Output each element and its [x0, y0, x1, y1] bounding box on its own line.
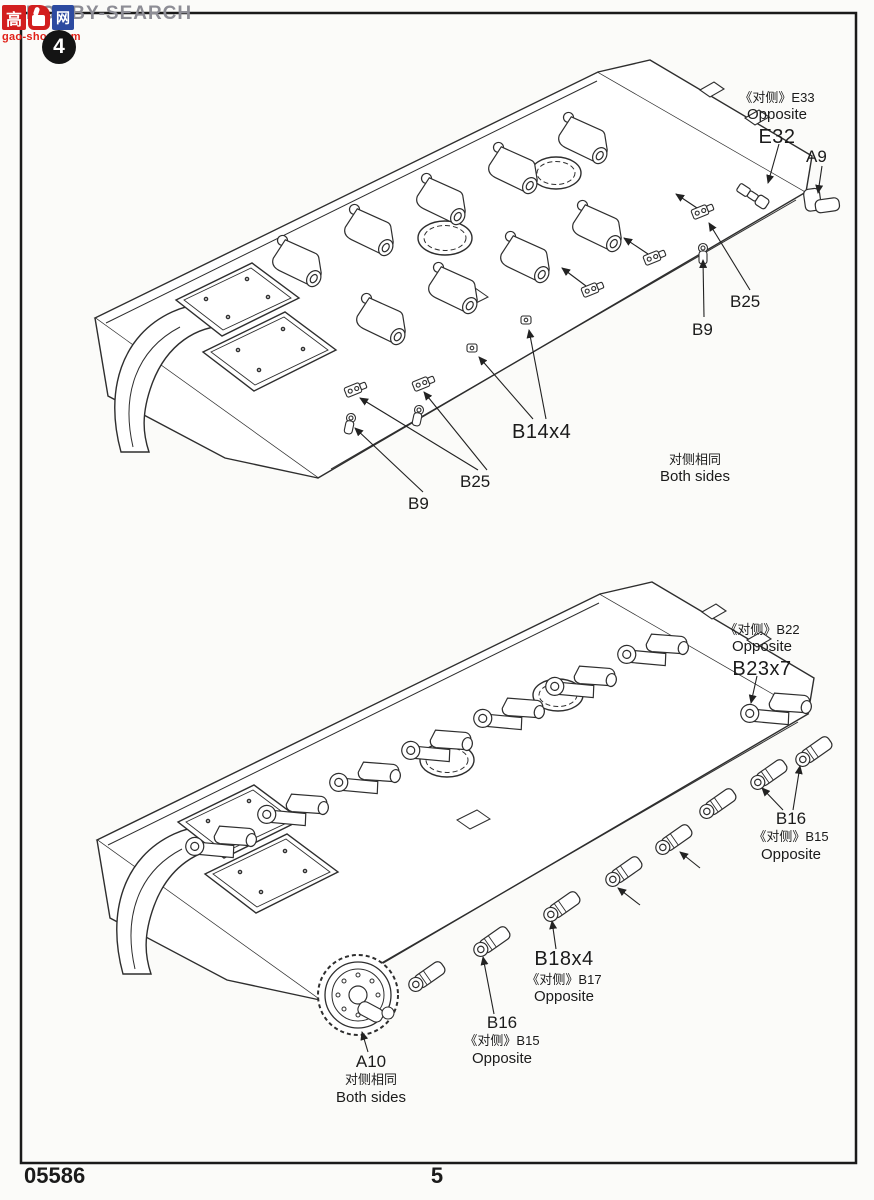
callout-b16-b15-front: B16 《对侧》B15 Opposite	[437, 1012, 567, 1068]
callout-line: 《对侧》B22	[697, 622, 827, 638]
callout-line: 《对侧》B17	[499, 972, 629, 988]
watermark: HOBBY-SEARCH 高 网 gao-shou.com	[0, 0, 230, 46]
callout-line: Both sides	[306, 1089, 436, 1108]
callout-b9-left: B9	[408, 493, 429, 514]
callout-b25-left: B25	[460, 471, 490, 492]
thumb-up-icon	[28, 5, 50, 30]
callout-line: 对侧相同	[306, 1072, 436, 1088]
callout-line: B23x7	[697, 657, 827, 682]
callout-b14x4: B14x4	[512, 420, 571, 445]
callout-line: Opposite	[697, 638, 827, 657]
callout-line: Opposite	[726, 846, 856, 865]
callout-line: 《对侧》B15	[726, 829, 856, 845]
callout-line: B18x4	[499, 947, 629, 972]
callout-line: B16	[437, 1012, 567, 1033]
callout-b22-b23x7: 《对侧》B22 Opposite B23x7	[697, 622, 827, 682]
callout-a9: A9	[806, 146, 827, 167]
note-line-zh: 对侧相同	[630, 452, 760, 468]
callout-line: A10	[306, 1051, 436, 1072]
logo-char-left: 高	[2, 5, 26, 30]
callout-b18x4-b17: B18x4 《对侧》B17 Opposite	[499, 947, 629, 1007]
step-number: 4	[53, 35, 65, 59]
page-number: 5	[407, 1163, 467, 1189]
callout-a10-both-sides: A10 对侧相同 Both sides	[306, 1051, 436, 1107]
callout-line: 《对侧》E33	[712, 90, 842, 106]
callout-e33-e32: 《对侧》E33 Opposite E32	[712, 90, 842, 150]
callout-b16-b15-right: B16 《对侧》B15 Opposite	[726, 808, 856, 864]
kit-number: 05586	[24, 1163, 85, 1189]
callout-line: Opposite	[499, 988, 629, 1007]
callout-b25-right: B25	[730, 291, 760, 312]
note-line-en: Both sides	[630, 468, 760, 487]
note-both-sides-top: 对侧相同 Both sides	[630, 452, 760, 487]
callout-line: 《对侧》B15	[437, 1033, 567, 1049]
instruction-page: HOBBY-SEARCH 高 网 gao-shou.com 4 《对侧》E33 …	[0, 0, 874, 1200]
callout-b9-right: B9	[692, 319, 713, 340]
callout-line: Opposite	[437, 1050, 567, 1069]
callout-line: B16	[726, 808, 856, 829]
logo-char-right: 网	[52, 5, 74, 30]
watermark-logo: 高 网	[2, 5, 74, 30]
step-number-badge: 4	[42, 30, 76, 64]
callout-line: Opposite	[712, 106, 842, 125]
